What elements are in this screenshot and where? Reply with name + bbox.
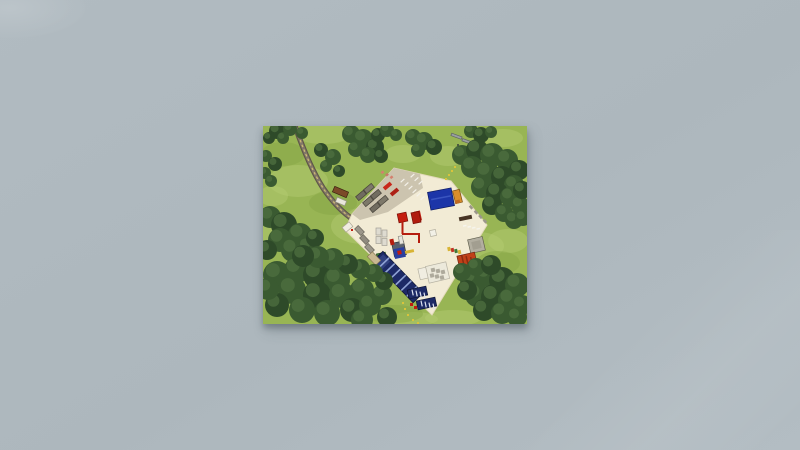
tree-canopy-highlight bbox=[391, 130, 397, 136]
red-pipe bbox=[402, 221, 404, 234]
tree-canopy-highlight bbox=[317, 302, 330, 315]
tree-canopy-highlight bbox=[459, 282, 469, 292]
survey-stake bbox=[412, 319, 414, 321]
tree-canopy-highlight bbox=[493, 168, 504, 179]
tree-canopy-highlight bbox=[269, 158, 276, 165]
scene-svg bbox=[263, 126, 527, 324]
tree-canopy-highlight bbox=[514, 297, 524, 307]
tree-canopy-highlight bbox=[473, 178, 484, 189]
tree-canopy-highlight bbox=[412, 144, 419, 151]
tree-canopy-highlight bbox=[484, 197, 494, 207]
tree-canopy-highlight bbox=[306, 283, 320, 297]
tree-canopy-highlight bbox=[362, 148, 370, 156]
tree-canopy-highlight bbox=[308, 230, 317, 239]
tree-canopy-highlight bbox=[486, 127, 492, 133]
red-pipe bbox=[418, 234, 420, 243]
red-marker bbox=[414, 306, 417, 309]
red-marker bbox=[410, 303, 413, 306]
tree-canopy-highlight bbox=[493, 304, 504, 315]
tree-canopy-highlight bbox=[428, 140, 436, 148]
red-pipe bbox=[402, 233, 420, 235]
tree-canopy-highlight bbox=[468, 141, 479, 152]
tree-canopy-highlight bbox=[475, 128, 483, 136]
tree-canopy-highlight bbox=[332, 284, 345, 297]
tree-canopy-highlight bbox=[509, 309, 519, 319]
tree-canopy-highlight bbox=[297, 128, 303, 134]
rig-wellhead bbox=[397, 250, 402, 255]
background-sheen-topleft bbox=[0, 0, 90, 40]
tree-canopy-highlight bbox=[344, 126, 353, 135]
tree-canopy-highlight bbox=[270, 230, 282, 242]
tree-canopy-highlight bbox=[506, 177, 516, 187]
tree-canopy-highlight bbox=[281, 278, 295, 292]
supply-crate bbox=[376, 228, 381, 235]
red-marker bbox=[351, 229, 353, 231]
tree-canopy-highlight bbox=[475, 301, 486, 312]
tree-canopy-highlight bbox=[342, 300, 354, 312]
survey-stake bbox=[404, 308, 406, 310]
tree-canopy-highlight bbox=[515, 182, 524, 191]
tree-canopy-highlight bbox=[266, 263, 280, 277]
tree-canopy-highlight bbox=[507, 212, 516, 221]
tree-canopy-highlight bbox=[327, 150, 335, 158]
tree-canopy-highlight bbox=[294, 247, 305, 258]
tree-canopy-highlight bbox=[497, 205, 506, 214]
tree-canopy-highlight bbox=[292, 299, 305, 312]
survey-stake bbox=[451, 170, 453, 172]
survey-stake bbox=[417, 322, 419, 324]
tree-canopy-highlight bbox=[315, 144, 322, 151]
desktop-background bbox=[0, 0, 800, 450]
tree-canopy-highlight bbox=[327, 269, 340, 282]
survey-stake bbox=[448, 174, 450, 176]
tree-canopy-highlight bbox=[334, 166, 340, 172]
tree-canopy-highlight bbox=[352, 280, 364, 292]
survey-stake bbox=[407, 314, 409, 316]
tree-canopy-highlight bbox=[511, 162, 521, 172]
tree-canopy-highlight bbox=[290, 225, 302, 237]
tree-canopy-highlight bbox=[350, 142, 358, 150]
tree-canopy-highlight bbox=[274, 214, 287, 227]
survey-stake bbox=[402, 302, 404, 304]
tree-canopy-highlight bbox=[469, 259, 478, 268]
tree-canopy-highlight bbox=[507, 275, 519, 287]
tree-canopy-highlight bbox=[407, 130, 415, 138]
survey-stake bbox=[454, 166, 456, 168]
tree-canopy-highlight bbox=[455, 264, 464, 273]
tree-canopy-highlight bbox=[488, 184, 499, 195]
tree-canopy-highlight bbox=[500, 290, 512, 302]
tree-canopy-highlight bbox=[375, 150, 382, 157]
tree-canopy-highlight bbox=[483, 257, 493, 267]
tree-canopy-highlight bbox=[372, 129, 379, 136]
supply-crate bbox=[382, 239, 387, 246]
white-shed bbox=[429, 229, 436, 236]
tree-canopy-highlight bbox=[278, 133, 284, 139]
survey-stake bbox=[445, 178, 447, 180]
tree-canopy-highlight bbox=[266, 176, 272, 182]
tree-canopy-highlight bbox=[517, 211, 525, 219]
tree-canopy-highlight bbox=[502, 189, 512, 199]
tree-canopy-highlight bbox=[417, 133, 426, 142]
tree-canopy-highlight bbox=[379, 309, 389, 319]
supply-crate bbox=[382, 230, 387, 237]
supply-crate bbox=[376, 237, 381, 244]
grass-patch bbox=[488, 229, 527, 253]
tree-canopy-highlight bbox=[477, 163, 489, 175]
tree-canopy-highlight bbox=[355, 131, 365, 141]
tree-canopy-highlight bbox=[264, 133, 270, 139]
tree-canopy-highlight bbox=[454, 147, 464, 157]
tree-canopy-highlight bbox=[463, 158, 474, 169]
tree-canopy-highlight bbox=[484, 286, 497, 299]
tree-canopy-highlight bbox=[353, 311, 364, 322]
tree-canopy-highlight bbox=[498, 151, 509, 162]
tree-canopy-highlight bbox=[361, 296, 372, 307]
tree-canopy-highlight bbox=[482, 145, 494, 157]
tree-canopy-highlight bbox=[321, 161, 327, 167]
scene-viewport[interactable] bbox=[263, 126, 527, 324]
tree-canopy-highlight bbox=[283, 240, 295, 252]
